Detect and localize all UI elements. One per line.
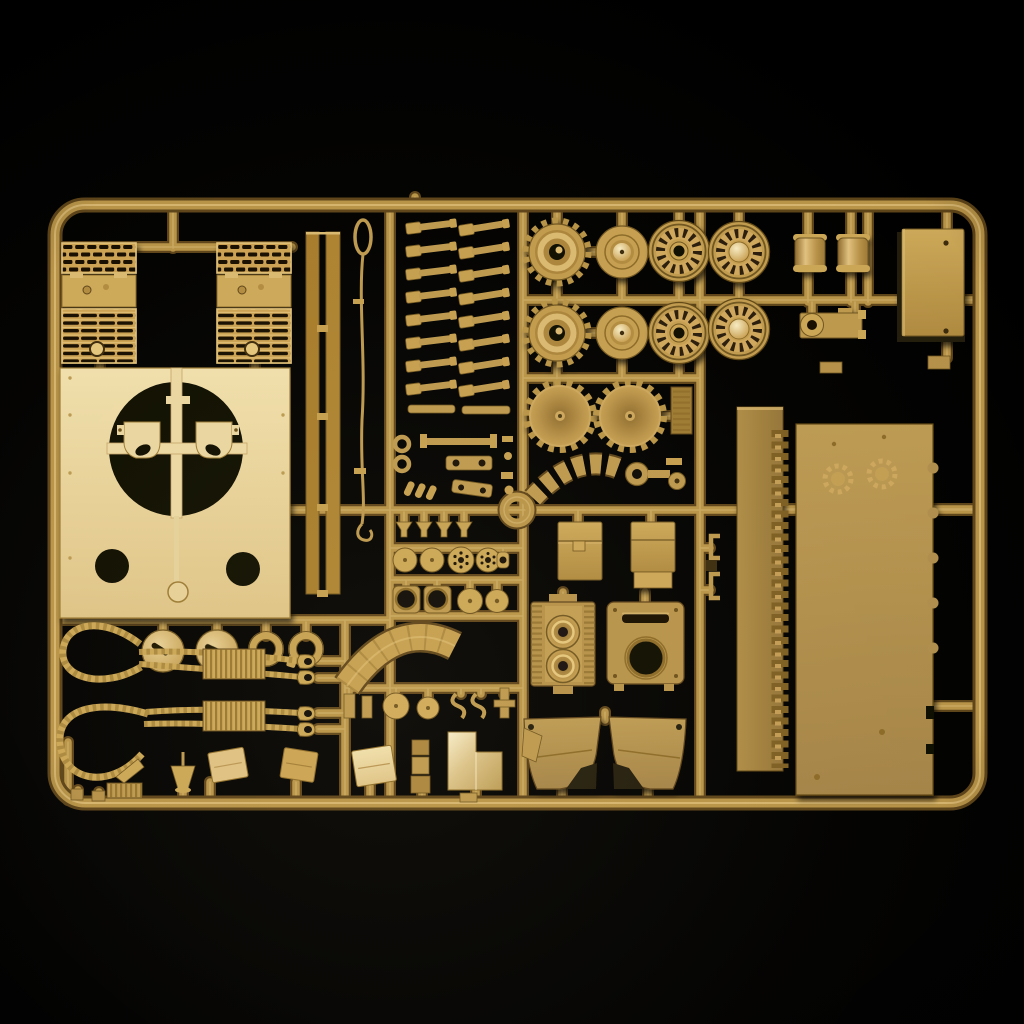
vignette (0, 0, 1024, 1024)
sprue-photo (0, 0, 1024, 1024)
sprue-photo-canvas (0, 0, 1024, 1024)
